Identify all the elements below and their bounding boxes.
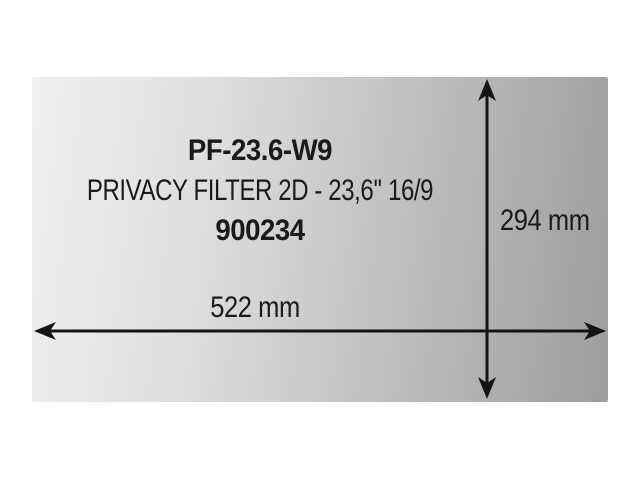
height-dimension-label: 294 mm	[500, 206, 590, 236]
width-dimension-label: 522 mm	[85, 293, 425, 323]
product-diagram: PF-23.6-W9 PRIVACY FILTER 2D - 23,6'' 16…	[0, 0, 640, 480]
dimension-arrows	[32, 77, 608, 402]
privacy-filter-panel: PF-23.6-W9 PRIVACY FILTER 2D - 23,6'' 16…	[32, 77, 608, 402]
